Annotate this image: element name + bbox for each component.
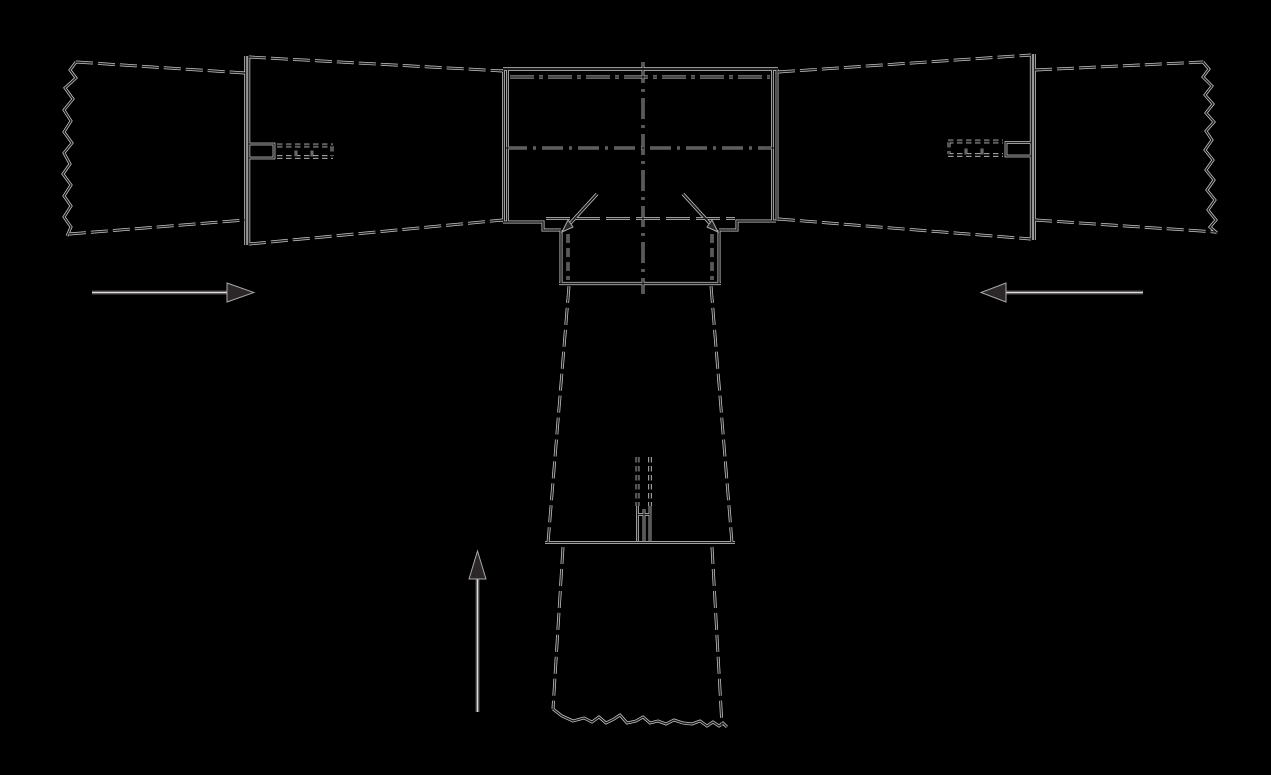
left-chord-bottom-edge bbox=[249, 220, 503, 244]
right-chord-end-bottom-edge bbox=[1035, 220, 1216, 232]
gusset-bottom-edge-right bbox=[719, 221, 776, 230]
post-upper-right-edge bbox=[711, 286, 732, 543]
left-chord-end-top-edge bbox=[76, 62, 245, 73]
right-force-arrow-head bbox=[981, 283, 1006, 302]
halo-layer bbox=[63, 54, 1217, 727]
gusset-bottom-edge-left bbox=[503, 222, 561, 230]
right-chord-bottom-edge bbox=[778, 219, 1031, 239]
right-splice-connector-plate bbox=[1006, 143, 1031, 157]
ink-layer bbox=[63, 54, 1217, 727]
left-chord-top-edge bbox=[249, 57, 503, 71]
right-chord-top-edge bbox=[778, 55, 1031, 72]
post-lower-right-edge bbox=[712, 547, 722, 726]
left-force-arrow-head bbox=[227, 283, 254, 302]
left-splice-connector-plate bbox=[249, 144, 274, 158]
bottom-force-arrow-head bbox=[469, 551, 486, 579]
drawing-canvas bbox=[0, 0, 1271, 775]
truss-joint-diagram bbox=[0, 0, 1271, 775]
post-lower-left-edge bbox=[553, 547, 563, 709]
left-chord-end-bottom-edge bbox=[69, 220, 245, 234]
right-chord-end-top-edge bbox=[1035, 62, 1203, 70]
post-upper-left-edge bbox=[548, 286, 569, 543]
left-splice-connector-plate bbox=[249, 144, 274, 158]
right-splice-connector-plate bbox=[1006, 143, 1031, 157]
